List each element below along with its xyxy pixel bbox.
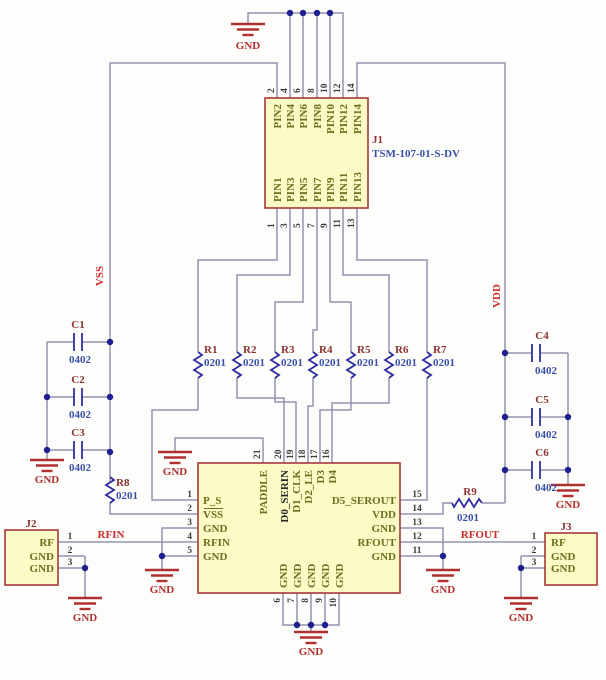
- junction-dot: [440, 553, 446, 559]
- ic-pin-number: 4: [187, 532, 192, 542]
- resistor-refdes: R1: [204, 344, 217, 356]
- j1-pin-number: 3: [280, 223, 290, 228]
- ic-pin-number: 14: [412, 504, 422, 514]
- resistor-r4-symbol: [309, 352, 317, 378]
- junction-dot: [294, 622, 300, 628]
- j2-pin-name: GND: [30, 563, 55, 575]
- gnd-label: GND: [236, 40, 261, 52]
- wire-paddle-gnd: [175, 438, 263, 463]
- ic-pin-number: 5: [187, 546, 192, 556]
- gnd-label: GND: [556, 499, 581, 511]
- resistor-r8: R8 0201: [106, 477, 138, 503]
- capacitor-value: 0402: [535, 429, 558, 441]
- junction-dot: [565, 414, 571, 420]
- j1-pin-name: PIN7: [312, 177, 324, 202]
- series-resistors: R1 0201 R2 0201 R3 0201 R4 0201 R5 0201 …: [194, 344, 455, 378]
- j1-pin-number: 10: [320, 83, 330, 93]
- capacitor-refdes: C1: [71, 319, 84, 331]
- junction-dot: [287, 10, 293, 16]
- ic-pin-name: D5_SEROUT: [332, 495, 397, 507]
- resistor-refdes: R7: [433, 344, 447, 356]
- j2-pin-number: 1: [68, 532, 73, 542]
- j3-pin-name: GND: [551, 551, 576, 563]
- resistor-refdes: R5: [357, 344, 371, 356]
- ic-pin-name: VDD: [372, 509, 396, 521]
- resistor-value: 0201: [116, 490, 138, 502]
- ic-pin-name: GND: [334, 564, 346, 589]
- j2-pin-name: RF: [39, 537, 54, 549]
- resistor-r2-symbol: [233, 352, 241, 378]
- ic-pin-name: GND: [320, 564, 332, 589]
- j1-pin-number: 1: [267, 223, 277, 228]
- junction-dot: [159, 553, 165, 559]
- j1-pin-name: PIN10: [325, 104, 337, 134]
- resistor-r1-symbol: [194, 352, 202, 378]
- j2-refdes: J2: [26, 518, 38, 530]
- ic-pin-name: D1_CLK: [291, 470, 303, 513]
- resistor-refdes: R8: [116, 477, 130, 489]
- ic-pin-name: RFIN: [203, 537, 230, 549]
- resistor-refdes: R6: [395, 344, 409, 356]
- j2-pin-name: GND: [30, 551, 55, 563]
- resistor-r5-symbol: [347, 352, 355, 378]
- j1-pin-number: 12: [333, 83, 343, 93]
- j3-pin-name: RF: [551, 537, 566, 549]
- gnd-icon: [158, 452, 192, 463]
- gnd-icon: [426, 570, 460, 581]
- ic-pin-name: RFOUT: [358, 537, 397, 549]
- j1-pin-name: PIN6: [298, 104, 310, 129]
- capacitor-refdes: C5: [535, 394, 549, 406]
- gnd-label: GND: [431, 584, 456, 596]
- j1-pin-number: 11: [333, 219, 343, 228]
- j1-pin-name: PIN5: [298, 177, 310, 202]
- ic-pin-number: 8: [301, 598, 311, 603]
- resistor-refdes: R2: [243, 344, 257, 356]
- capacitor-value: 0402: [535, 482, 558, 494]
- junction-dot: [565, 467, 571, 473]
- j1-pin-name: PIN11: [338, 173, 350, 202]
- j1-pin-name: PIN4: [285, 104, 297, 129]
- resistor-refdes: R3: [281, 344, 295, 356]
- wire-vdd-rail: [357, 63, 505, 503]
- junction-dot: [107, 449, 113, 455]
- j3-pin-number: 2: [532, 546, 537, 556]
- j1-pin-name: PIN8: [312, 104, 324, 129]
- junction-dot: [314, 10, 320, 16]
- capacitor-refdes: C4: [535, 330, 549, 342]
- junction-dot: [82, 565, 88, 571]
- ic-pin-name: D3: [315, 470, 327, 484]
- resistor-value: 0201: [319, 357, 341, 369]
- ic-pin-number: 9: [315, 598, 325, 603]
- ic-pin-name: GND: [278, 564, 290, 589]
- junction-dot: [300, 10, 306, 16]
- resistor-value: 0201: [281, 357, 303, 369]
- gnd-label: GND: [150, 584, 175, 596]
- capacitor-value: 0402: [69, 409, 92, 421]
- capacitor-refdes: C6: [535, 447, 549, 459]
- gnd-icon: [30, 460, 64, 471]
- junction-dot: [44, 447, 50, 453]
- ic-pin-number: 19: [286, 449, 296, 459]
- capacitor-value: 0402: [535, 365, 558, 377]
- junction-dot: [502, 414, 508, 420]
- resistor-value: 0201: [357, 357, 379, 369]
- ic-pin-number: 1: [187, 490, 192, 500]
- ic-pin-number: 18: [298, 449, 308, 459]
- ic-pin-name: D0_SERIN: [279, 470, 291, 523]
- j1-pin-number: 14: [347, 83, 357, 93]
- gnd-label: GND: [299, 646, 324, 658]
- ic-pin-name: GND: [372, 551, 397, 563]
- ic-pin-number: 15: [412, 490, 422, 500]
- wire-ic-left: [58, 528, 198, 570]
- ic-pin-number: 16: [322, 449, 332, 459]
- capacitor-value: 0402: [69, 462, 92, 474]
- gnd-icon: [145, 570, 179, 581]
- resistor-r7-symbol: [423, 352, 431, 378]
- ic-pin-number: 17: [310, 449, 320, 459]
- junction-dot: [322, 622, 328, 628]
- capacitor-refdes: C3: [71, 427, 85, 439]
- junction-dot: [327, 10, 333, 16]
- ic-pin-number: 2: [187, 504, 192, 514]
- j1-pin-name: PIN14: [352, 104, 364, 134]
- capacitor-value: 0402: [69, 354, 92, 366]
- j1-connector: J1 TSM-107-01-S-DV 2 4 6 8 10 12 14 PIN2…: [265, 83, 460, 228]
- j1-pin-number: 7: [307, 223, 317, 228]
- junction-dot: [308, 622, 314, 628]
- resistor-refdes: R9: [463, 486, 477, 498]
- ic-pin-number: 21: [253, 449, 263, 459]
- gnd-label: GND: [35, 474, 60, 486]
- gnd-label: GND: [509, 612, 534, 624]
- j1-pin-number: 6: [293, 88, 303, 93]
- j1-pin-number: 5: [293, 223, 303, 228]
- ic-pin-name: GND: [292, 564, 304, 589]
- j1-pin-number: 9: [320, 223, 330, 228]
- ic-pin-name: GND: [203, 523, 228, 535]
- ic-pin-name: D4: [327, 470, 339, 484]
- j1-refdes: J1: [372, 134, 383, 146]
- junction-dot: [502, 350, 508, 356]
- ic-pin-number: 3: [187, 518, 192, 528]
- schematic-page: GND GND GND GND GND GND GND GND GND VSS …: [0, 0, 606, 680]
- main-ic: 1 2 3 4 5 P_S VSS GND RFIN GND 15 14 13 …: [187, 449, 422, 607]
- ic-pin-name: GND: [306, 564, 318, 589]
- j1-pin-name: PIN1: [272, 178, 284, 202]
- j1-pin-name: PIN9: [325, 177, 337, 202]
- ic-pin-number: 13: [412, 518, 422, 528]
- j1-pin-number: 13: [347, 218, 357, 228]
- j1-pin-number: 2: [267, 88, 277, 93]
- resistor-value: 0201: [243, 357, 265, 369]
- j1-part-number: TSM-107-01-S-DV: [372, 148, 460, 160]
- net-label-rfout: RFOUT: [461, 529, 500, 541]
- resistor-refdes: R4: [319, 344, 333, 356]
- resistor-value: 0201: [395, 357, 417, 369]
- j1-pin-number: 8: [307, 88, 317, 93]
- ic-pin-name: PADDLE: [258, 470, 270, 514]
- ic-pin-name: GND: [203, 551, 228, 563]
- ic-pin-name: GND: [372, 523, 397, 535]
- j1-pin-name: PIN12: [338, 104, 350, 134]
- junction-dot: [502, 467, 508, 473]
- ic-pin-number: 11: [413, 546, 422, 556]
- resistor-value: 0201: [433, 357, 455, 369]
- junction-dot: [107, 339, 113, 345]
- wire-j1-fanout: [198, 208, 427, 352]
- j3-pin-number: 3: [532, 558, 537, 568]
- ic-pin-number: 7: [287, 598, 297, 603]
- junction-dot: [44, 394, 50, 400]
- j2-pin-number: 3: [68, 558, 73, 568]
- junction-dot: [107, 394, 113, 400]
- ic-pin-number: 20: [274, 449, 284, 459]
- wire-vss-rail: [110, 63, 277, 514]
- gnd-icon: [504, 598, 538, 609]
- schematic-canvas: GND GND GND GND GND GND GND GND GND VSS …: [0, 0, 606, 680]
- resistor-r9: R9 0201: [452, 486, 482, 524]
- j1-pin-number: 4: [280, 88, 290, 93]
- junction-dot: [518, 565, 524, 571]
- capacitor-refdes: C2: [71, 374, 85, 386]
- ic-pin-name: VSS: [203, 509, 223, 521]
- resistor-r3-symbol: [271, 352, 279, 378]
- j3-connector: J3 RF GND GND 1 2 3: [532, 521, 597, 585]
- net-label-rfin: RFIN: [98, 529, 125, 541]
- j3-refdes: J3: [561, 521, 573, 533]
- resistor-r9-symbol: [452, 499, 482, 507]
- resistor-value: 0201: [204, 357, 226, 369]
- net-label-vdd: VDD: [491, 284, 503, 308]
- j3-pin-number: 1: [532, 532, 537, 542]
- j3-pin-name: GND: [551, 563, 576, 575]
- gnd-icon: [231, 24, 265, 35]
- ic-pin-name: P_S: [203, 495, 221, 507]
- ic-pin-name: D2_LE: [303, 470, 315, 504]
- j1-pin-name: PIN13: [352, 172, 364, 202]
- j1-pin-name: PIN2: [272, 104, 284, 129]
- resistor-value: 0201: [457, 512, 479, 524]
- ic-pin-number: 10: [329, 598, 339, 608]
- j1-pin-name: PIN3: [285, 177, 297, 202]
- gnd-label: GND: [163, 466, 188, 478]
- net-label-vss: VSS: [94, 266, 106, 286]
- j2-pin-number: 2: [68, 546, 73, 556]
- resistor-r6-symbol: [385, 352, 393, 378]
- gnd-label: GND: [73, 612, 98, 624]
- gnd-icon: [68, 598, 102, 609]
- ic-pin-number: 12: [412, 532, 422, 542]
- j2-connector: J2 RF GND GND 1 2 3: [5, 518, 73, 585]
- ic-pin-number: 6: [273, 598, 283, 603]
- gnd-icon: [294, 632, 328, 643]
